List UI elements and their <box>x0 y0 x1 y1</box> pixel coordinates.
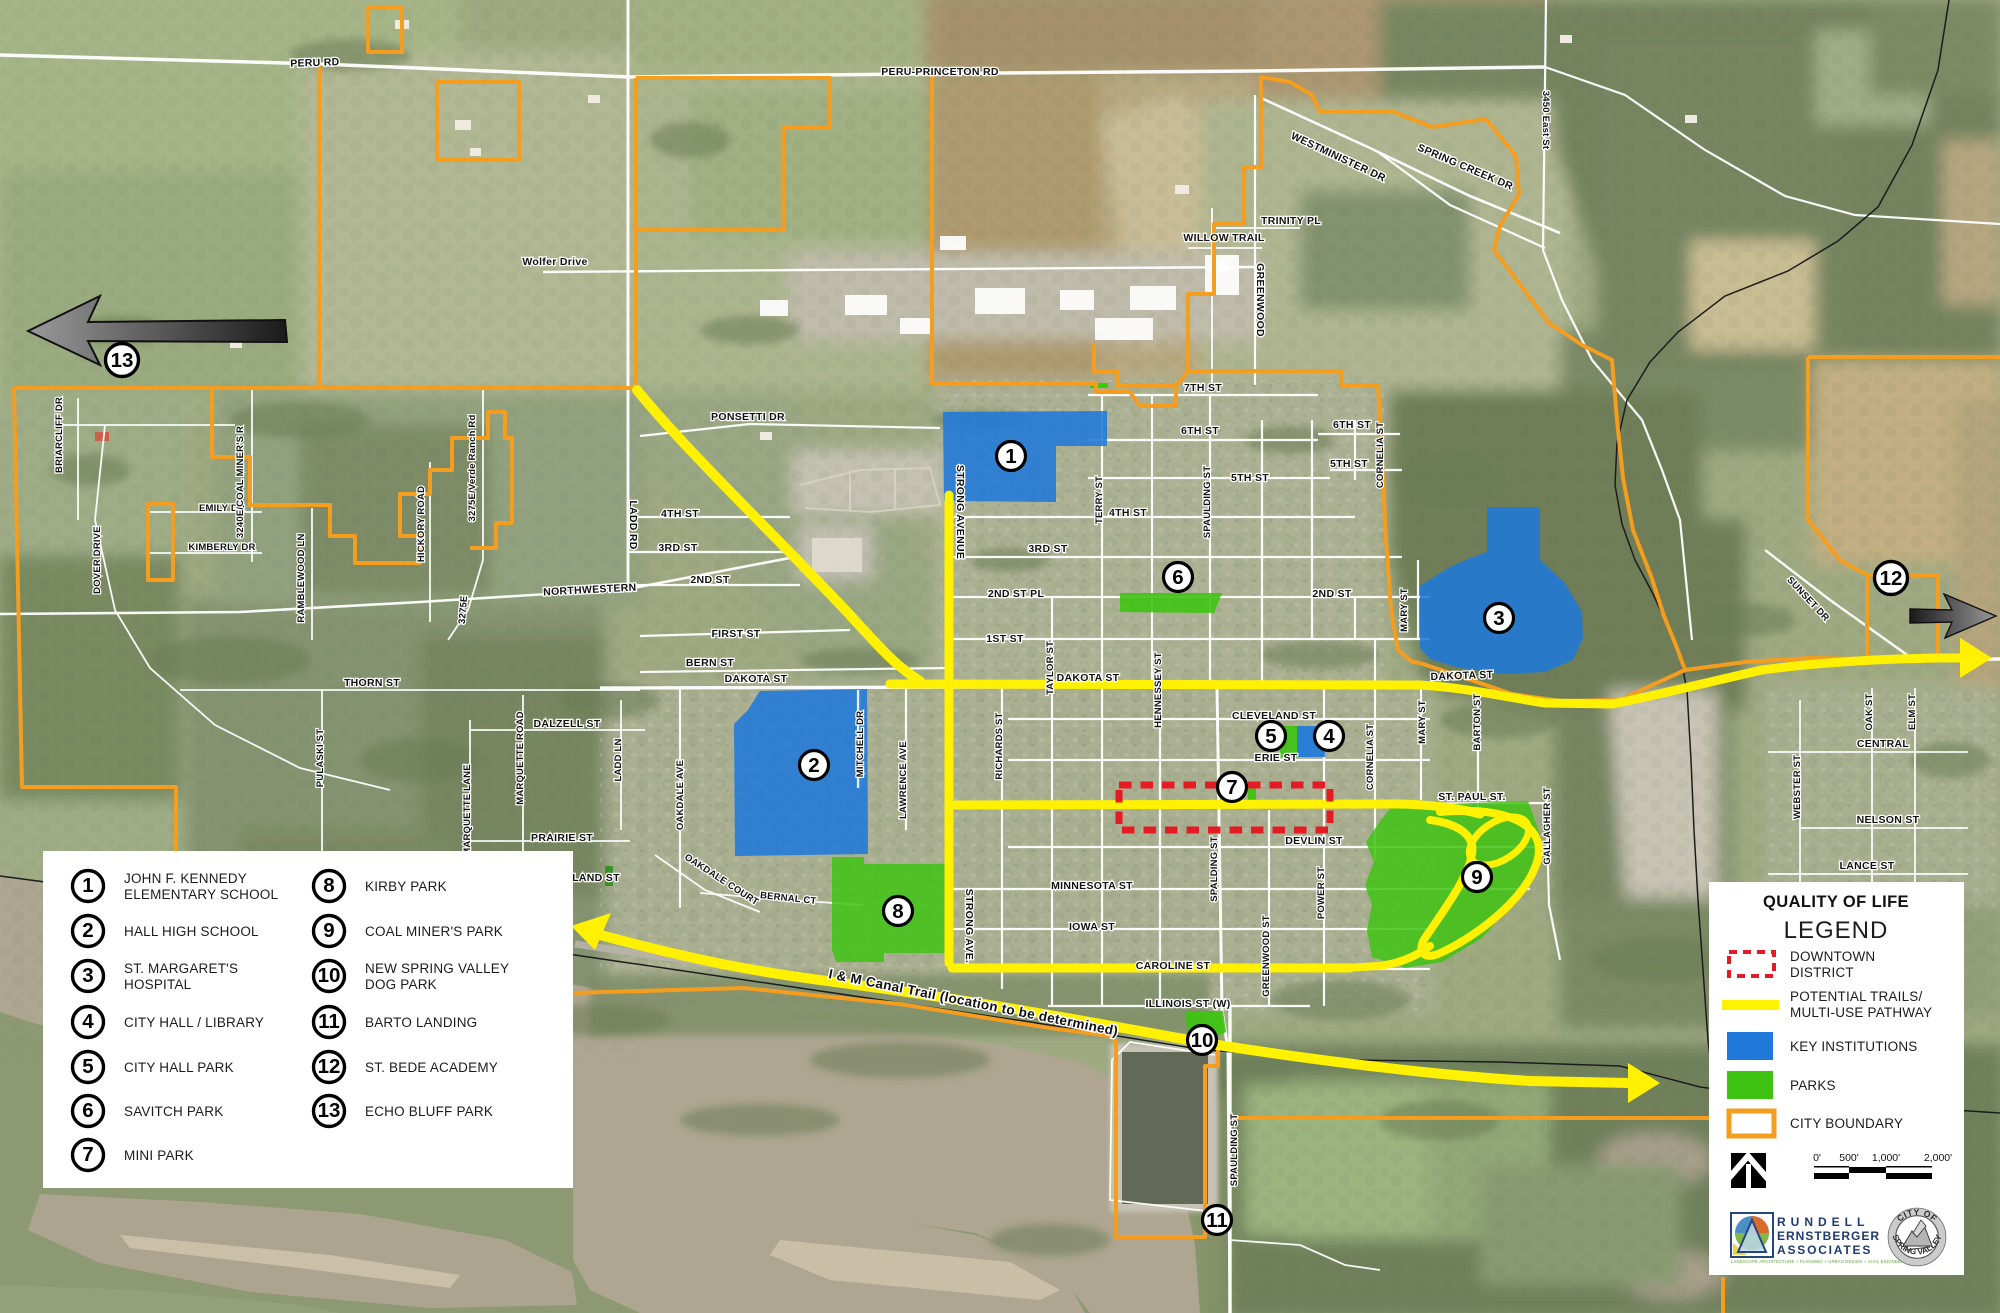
svg-text:3450 East St: 3450 East St <box>1540 91 1551 150</box>
svg-text:6: 6 <box>82 1099 93 1122</box>
svg-text:4TH ST: 4TH ST <box>661 508 699 520</box>
svg-text:RAMBLEWOOD LN: RAMBLEWOOD LN <box>296 533 307 622</box>
svg-text:6TH ST: 6TH ST <box>1333 419 1371 431</box>
svg-text:6: 6 <box>1172 566 1183 589</box>
svg-text:500': 500' <box>1839 1152 1859 1164</box>
svg-text:MARY ST: MARY ST <box>1399 588 1410 632</box>
svg-text:TERRY ST: TERRY ST <box>1094 476 1105 524</box>
svg-text:DALZELL ST: DALZELL ST <box>534 718 601 730</box>
svg-text:8: 8 <box>892 900 903 923</box>
svg-text:POWER ST: POWER ST <box>1316 867 1327 919</box>
svg-text:HALL HIGH SCHOOL: HALL HIGH SCHOOL <box>124 924 259 939</box>
svg-text:12: 12 <box>1880 567 1903 590</box>
svg-text:IOWA ST: IOWA ST <box>1069 921 1115 933</box>
svg-text:PRAIRIE ST: PRAIRIE ST <box>531 832 593 844</box>
svg-text:ERNSTBERGER: ERNSTBERGER <box>1777 1229 1880 1243</box>
svg-text:ELM ST: ELM ST <box>1907 694 1918 730</box>
svg-text:THORN ST: THORN ST <box>344 677 400 689</box>
svg-text:3: 3 <box>1493 607 1504 630</box>
svg-text:WILLOW TRAIL: WILLOW TRAIL <box>1183 232 1264 244</box>
svg-text:STRONG AVE.: STRONG AVE. <box>963 889 975 963</box>
svg-text:CITY HALL PARK: CITY HALL PARK <box>124 1060 234 1075</box>
svg-text:7: 7 <box>82 1143 93 1166</box>
svg-text:BARTO LANDING: BARTO LANDING <box>365 1015 477 1030</box>
svg-text:GALLAGHER ST: GALLAGHER ST <box>1542 787 1553 864</box>
svg-text:5TH ST: 5TH ST <box>1330 458 1368 470</box>
svg-text:1ST ST: 1ST ST <box>986 633 1024 645</box>
svg-text:ST. MARGARET'S: ST. MARGARET'S <box>124 961 238 976</box>
svg-text:ASSOCIATES: ASSOCIATES <box>1777 1243 1872 1257</box>
svg-text:DAKOTA ST: DAKOTA ST <box>1430 669 1493 683</box>
svg-text:POTENTIAL TRAILS/: POTENTIAL TRAILS/ <box>1790 989 1922 1004</box>
svg-text:LANCE ST: LANCE ST <box>1840 860 1895 872</box>
svg-text:7TH ST: 7TH ST <box>1184 382 1222 394</box>
svg-text:KEY INSTITUTIONS: KEY INSTITUTIONS <box>1790 1039 1917 1054</box>
svg-text:2,000': 2,000' <box>1924 1152 1952 1164</box>
svg-text:NELSON ST: NELSON ST <box>1857 814 1920 826</box>
svg-text:MARY ST: MARY ST <box>1417 700 1428 744</box>
svg-text:TRINITY PL: TRINITY PL <box>1261 215 1321 227</box>
svg-text:LANDSCAPE ARCHITECTURE + PLANN: LANDSCAPE ARCHITECTURE + PLANNING + URBA… <box>1731 1259 1912 1264</box>
svg-text:11: 11 <box>1206 1209 1228 1232</box>
svg-text:ERIE ST: ERIE ST <box>1255 752 1298 764</box>
svg-text:DEVLIN ST: DEVLIN ST <box>1285 835 1343 847</box>
svg-text:PONSETTI DR: PONSETTI DR <box>711 411 785 423</box>
svg-text:MARQUETTE LANE: MARQUETTE LANE <box>462 764 473 855</box>
svg-text:SPAULDING ST: SPAULDING ST <box>1229 1114 1240 1186</box>
svg-text:CORNELIA ST: CORNELIA ST <box>1365 724 1376 790</box>
svg-text:9: 9 <box>323 919 334 942</box>
svg-text:ILLINOIS ST (W): ILLINOIS ST (W) <box>1146 998 1231 1010</box>
svg-text:CLEVELAND ST: CLEVELAND ST <box>1232 710 1316 722</box>
svg-text:6TH ST: 6TH ST <box>1181 425 1219 437</box>
svg-text:2: 2 <box>82 919 93 942</box>
svg-text:RICHARDS ST: RICHARDS ST <box>994 712 1005 779</box>
svg-text:0': 0' <box>1813 1152 1821 1164</box>
svg-text:JOHN F. KENNEDY: JOHN F. KENNEDY <box>124 871 247 886</box>
svg-text:PULASKI ST: PULASKI ST <box>315 729 326 787</box>
svg-text:PARKS: PARKS <box>1790 1078 1836 1093</box>
svg-text:CAROLINE ST: CAROLINE ST <box>1136 960 1211 972</box>
svg-text:3: 3 <box>82 964 93 987</box>
svg-text:10: 10 <box>318 964 341 987</box>
svg-text:13: 13 <box>318 1099 341 1122</box>
svg-text:OAKDALE AVE: OAKDALE AVE <box>675 760 686 830</box>
svg-text:RUNDELL: RUNDELL <box>1777 1215 1869 1229</box>
svg-text:CITY BOUNDARY: CITY BOUNDARY <box>1790 1116 1903 1131</box>
svg-text:STRONG AVENUE: STRONG AVENUE <box>954 465 966 559</box>
svg-text:HOSPITAL: HOSPITAL <box>124 977 192 992</box>
svg-text:5TH ST: 5TH ST <box>1231 472 1269 484</box>
svg-text:DOG PARK: DOG PARK <box>365 977 437 992</box>
svg-text:LAWRENCE AVE: LAWRENCE AVE <box>898 741 909 819</box>
svg-text:GREENWOOD ST: GREENWOOD ST <box>1261 915 1272 997</box>
svg-text:DAKOTA ST: DAKOTA ST <box>1057 672 1120 684</box>
svg-text:LAND ST: LAND ST <box>572 872 620 884</box>
svg-text:2: 2 <box>808 754 819 777</box>
svg-text:MINNESOTA ST: MINNESOTA ST <box>1051 880 1133 892</box>
svg-text:DOVER DRIVE: DOVER DRIVE <box>92 526 103 594</box>
svg-text:NEW SPRING VALLEY: NEW SPRING VALLEY <box>365 961 509 976</box>
svg-text:DISTRICT: DISTRICT <box>1790 965 1854 980</box>
svg-text:2ND ST PL: 2ND ST PL <box>988 588 1045 600</box>
svg-text:8: 8 <box>323 874 334 897</box>
svg-text:PERU-PRINCETON RD: PERU-PRINCETON RD <box>881 66 999 78</box>
svg-text:3240E/COAL MINER'S R: 3240E/COAL MINER'S R <box>235 426 246 538</box>
svg-text:1: 1 <box>82 874 93 897</box>
svg-text:COAL MINER'S PARK: COAL MINER'S PARK <box>365 924 503 939</box>
svg-text:10: 10 <box>1191 1029 1214 1052</box>
svg-text:HICKORY ROAD: HICKORY ROAD <box>416 486 427 562</box>
svg-text:7: 7 <box>1226 776 1237 799</box>
svg-text:PERU RD: PERU RD <box>290 56 340 70</box>
svg-text:ST. PAUL ST.: ST. PAUL ST. <box>1438 791 1505 803</box>
svg-text:LADD RD: LADD RD <box>627 500 639 549</box>
svg-text:CITY HALL / LIBRARY: CITY HALL / LIBRARY <box>124 1015 264 1030</box>
svg-text:GREENWOOD: GREENWOOD <box>1254 263 1266 337</box>
svg-text:ECHO BLUFF PARK: ECHO BLUFF PARK <box>365 1104 493 1119</box>
svg-text:BERN ST: BERN ST <box>686 657 734 669</box>
svg-text:2ND ST: 2ND ST <box>690 574 729 586</box>
svg-text:BARTON ST: BARTON ST <box>1472 693 1483 750</box>
svg-text:WEBSTER ST: WEBSTER ST <box>1792 755 1803 819</box>
svg-text:Wolfer Drive: Wolfer Drive <box>522 256 587 268</box>
svg-text:MULTI-USE PATHWAY: MULTI-USE PATHWAY <box>1790 1005 1932 1020</box>
svg-text:MINI PARK: MINI PARK <box>124 1148 194 1163</box>
svg-text:DAKOTA ST: DAKOTA ST <box>725 673 788 685</box>
svg-text:13: 13 <box>111 349 134 372</box>
svg-text:HENNESSEY ST: HENNESSEY ST <box>1153 652 1164 728</box>
svg-text:9: 9 <box>1471 866 1482 889</box>
svg-text:CENTRAL: CENTRAL <box>1857 738 1910 750</box>
svg-text:MARQUETTE ROAD: MARQUETTE ROAD <box>515 711 526 805</box>
svg-text:11: 11 <box>318 1010 340 1033</box>
svg-text:1,000': 1,000' <box>1872 1152 1900 1164</box>
svg-text:5: 5 <box>82 1055 93 1078</box>
svg-text:FIRST ST: FIRST ST <box>711 628 760 640</box>
svg-text:CORNELIA ST: CORNELIA ST <box>1375 422 1386 488</box>
svg-text:4: 4 <box>82 1010 94 1033</box>
svg-text:ST. BEDE ACADEMY: ST. BEDE ACADEMY <box>365 1060 498 1075</box>
svg-text:OAK ST: OAK ST <box>1864 693 1875 730</box>
svg-text:3RD ST: 3RD ST <box>1028 543 1067 555</box>
svg-text:LEGEND: LEGEND <box>1784 917 1889 944</box>
svg-text:5: 5 <box>1265 725 1276 748</box>
svg-text:SPALDING ST: SPALDING ST <box>1209 836 1220 901</box>
svg-text:QUALITY OF LIFE: QUALITY OF LIFE <box>1763 893 1909 911</box>
svg-text:ELEMENTARY SCHOOL: ELEMENTARY SCHOOL <box>124 887 278 902</box>
svg-text:MITCHELL DR: MITCHELL DR <box>855 711 866 777</box>
svg-text:4TH ST: 4TH ST <box>1109 507 1147 519</box>
svg-text:KIRBY PARK: KIRBY PARK <box>365 879 447 894</box>
svg-text:TAYLOR ST: TAYLOR ST <box>1045 641 1056 695</box>
svg-text:BRIARCLIFF DR: BRIARCLIFF DR <box>54 397 65 473</box>
svg-text:2ND ST: 2ND ST <box>1312 588 1351 600</box>
svg-text:KIMBERLY DR: KIMBERLY DR <box>188 542 255 553</box>
svg-text:3RD ST: 3RD ST <box>658 542 697 554</box>
svg-text:12: 12 <box>318 1055 341 1078</box>
svg-text:1: 1 <box>1005 445 1016 468</box>
svg-text:SAVITCH PARK: SAVITCH PARK <box>124 1104 223 1119</box>
svg-text:4: 4 <box>1323 725 1335 748</box>
svg-text:LADD LN: LADD LN <box>613 738 624 781</box>
svg-text:3275E/Verde Ranch Rd: 3275E/Verde Ranch Rd <box>467 415 478 522</box>
svg-text:SPAULDING ST: SPAULDING ST <box>1202 466 1213 538</box>
svg-text:DOWNTOWN: DOWNTOWN <box>1790 949 1875 964</box>
